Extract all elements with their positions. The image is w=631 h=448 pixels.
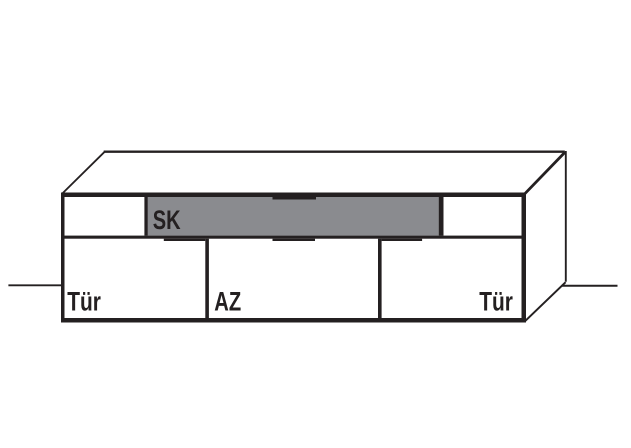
svg-text:AZ: AZ (214, 288, 241, 317)
svg-text:SK: SK (153, 206, 181, 235)
svg-text:Tür: Tür (67, 287, 101, 317)
svg-text:Tür: Tür (479, 287, 513, 317)
